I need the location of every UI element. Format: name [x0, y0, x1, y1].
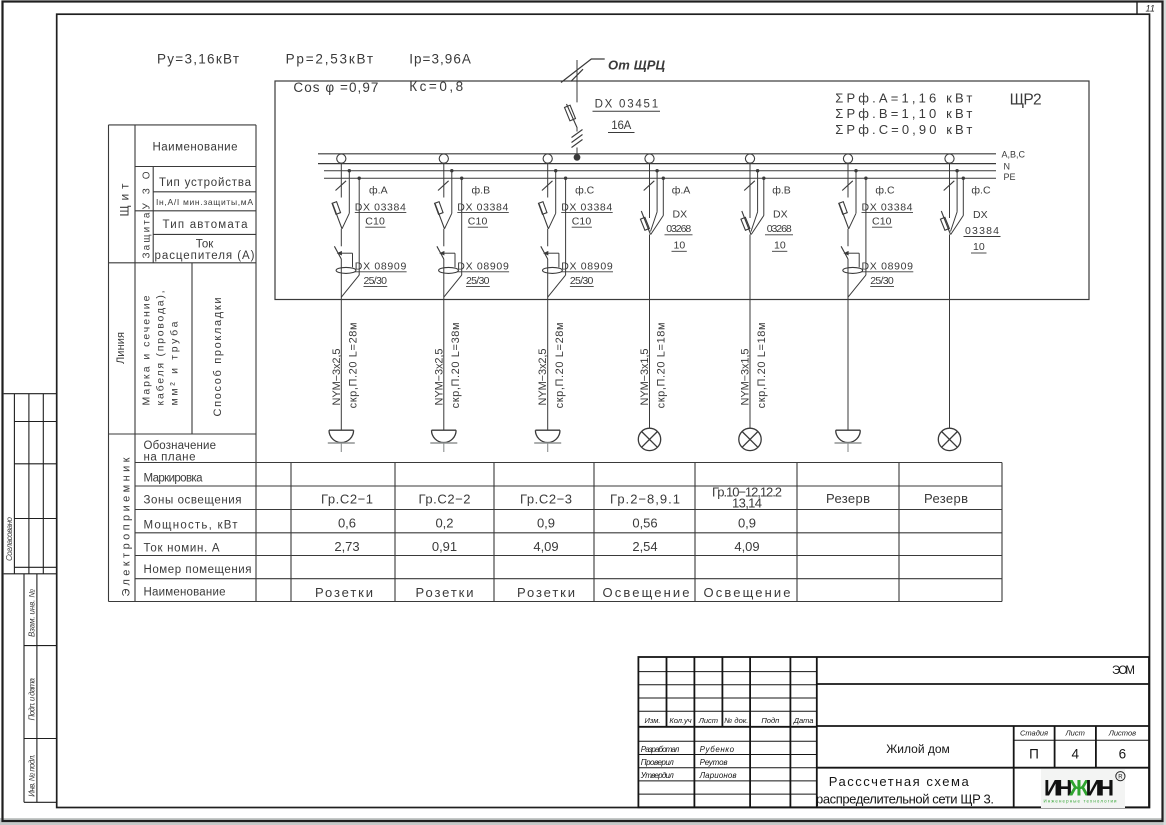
svg-text:Освещение: Освещение	[704, 585, 791, 600]
svg-text:скр,П.20 L=18м: скр,П.20 L=18м	[656, 322, 668, 408]
svg-text:Кол.уч: Кол.уч	[669, 716, 691, 725]
svg-text:Изм.: Изм.	[645, 716, 661, 725]
svg-text:ф.В: ф.В	[772, 185, 791, 197]
svg-text:ф.А: ф.А	[672, 185, 691, 197]
svg-text:От ЩРЦ: От ЩРЦ	[608, 58, 666, 73]
svg-text:25/30: 25/30	[570, 275, 594, 287]
svg-text:распределительной сети ЩР 3.: распределительной сети ЩР 3.	[816, 792, 994, 807]
svg-text:DX 03451: DX 03451	[595, 99, 659, 111]
svg-text:А,В,С: А,В,С	[1002, 149, 1026, 159]
svg-text:скр,П.20 L=28м: скр,П.20 L=28м	[554, 322, 566, 408]
svg-text:Листов: Листов	[1108, 728, 1136, 737]
svg-text:Утвердил: Утвердил	[640, 771, 674, 780]
svg-text:R: R	[1118, 775, 1123, 781]
svg-text:2,73: 2,73	[334, 539, 359, 554]
svg-text:DX 03384: DX 03384	[862, 201, 913, 213]
svg-text:Тип автомата: Тип автомата	[163, 219, 249, 231]
svg-text:10: 10	[973, 241, 985, 253]
svg-text:Cos φ =0,97: Cos φ =0,97	[293, 80, 378, 95]
svg-text:Гр.С2−2: Гр.С2−2	[419, 491, 471, 506]
svg-text:мм² и труба: мм² и труба	[169, 321, 181, 405]
svg-text:11: 11	[1146, 4, 1155, 14]
svg-text:NYM−3x1,5: NYM−3x1,5	[639, 349, 651, 406]
svg-text:Щит: Щит	[118, 183, 132, 217]
svg-text:6: 6	[1119, 747, 1127, 762]
svg-text:Линия: Линия	[115, 332, 127, 364]
svg-text:10: 10	[774, 240, 786, 252]
svg-text:Ток: Ток	[196, 239, 215, 251]
svg-text:Гр.2−8,9.1: Гр.2−8,9.1	[610, 491, 680, 506]
svg-text:Рубенко: Рубенко	[700, 745, 735, 754]
svg-text:Ру=3,16кВт: Ру=3,16кВт	[157, 52, 239, 67]
svg-text:скр,П.20 L=28м: скр,П.20 L=28м	[348, 322, 360, 408]
svg-text:Лист: Лист	[698, 716, 718, 725]
svg-text:0,9: 0,9	[738, 515, 756, 530]
svg-text:Наименование: Наименование	[144, 587, 226, 599]
svg-text:DX 08909: DX 08909	[355, 260, 407, 272]
svg-text:13,14: 13,14	[732, 496, 762, 511]
svg-text:Инв. № подл.: Инв. № подл.	[28, 754, 37, 797]
svg-text:Жилой дом: Жилой дом	[886, 742, 950, 756]
svg-text:2,54: 2,54	[632, 539, 657, 554]
svg-text:Гр.С2−3: Гр.С2−3	[520, 491, 572, 506]
svg-text:расцепителя (А): расцепителя (А)	[155, 250, 255, 262]
svg-text:DX 03384: DX 03384	[561, 201, 612, 213]
svg-text:25/30: 25/30	[364, 275, 388, 287]
svg-text:Тип устройства: Тип устройства	[159, 177, 252, 189]
svg-text:Номер помещения: Номер помещения	[144, 564, 252, 576]
svg-text:Расссчетная схема: Расссчетная схема	[829, 774, 970, 789]
svg-text:Ларионов: Ларионов	[699, 771, 737, 780]
svg-text:03268: 03268	[666, 223, 691, 235]
svg-text:Подп: Подп	[761, 716, 779, 725]
svg-text:Наименование: Наименование	[153, 142, 238, 154]
svg-text:25/30: 25/30	[466, 275, 490, 287]
svg-text:Способ прокладки: Способ прокладки	[212, 298, 224, 417]
svg-text:ф.В: ф.В	[472, 185, 491, 197]
svg-text:ЭОМ: ЭОМ	[1112, 665, 1135, 677]
svg-text:N: N	[1004, 161, 1011, 171]
svg-text:УЗО: УЗО	[142, 171, 153, 209]
svg-text:Стадия: Стадия	[1020, 728, 1048, 737]
svg-text:Рр=2,53кВт: Рр=2,53кВт	[286, 52, 374, 67]
svg-text:Резерв: Резерв	[826, 491, 870, 506]
svg-text:на плане: на плане	[144, 452, 196, 464]
svg-text:Марка и сечение: Марка и сечение	[141, 295, 153, 405]
svg-text:ф.С: ф.С	[875, 185, 895, 197]
svg-text:0,2: 0,2	[435, 515, 453, 530]
svg-text:0,9: 0,9	[537, 515, 555, 530]
svg-text:Инженерные технологии: Инженерные технологии	[1044, 799, 1118, 804]
svg-text:4,09: 4,09	[533, 539, 558, 554]
svg-text:П: П	[1029, 747, 1039, 762]
svg-text:DX: DX	[973, 209, 988, 221]
svg-text:03268: 03268	[767, 223, 792, 235]
svg-text:Электроприемник: Электроприемник	[121, 457, 133, 596]
svg-text:C10: C10	[365, 216, 385, 228]
svg-text:скр,П.20 L=38м: скр,П.20 L=38м	[450, 322, 462, 408]
svg-text:4: 4	[1071, 747, 1079, 762]
svg-text:Реутов: Реутов	[700, 758, 728, 767]
svg-text:C10: C10	[468, 216, 488, 228]
svg-text:Освещение: Освещение	[603, 585, 690, 600]
svg-text:ф.С: ф.С	[575, 185, 595, 197]
svg-text:NYM−3x2,5: NYM−3x2,5	[537, 349, 549, 406]
svg-text:25/30: 25/30	[870, 275, 894, 287]
svg-text:DX 03384: DX 03384	[457, 201, 508, 213]
svg-text:ф.А: ф.А	[369, 185, 388, 197]
svg-text:DX 08909: DX 08909	[862, 260, 914, 272]
svg-text:Зоны освещения: Зоны освещения	[144, 494, 242, 506]
svg-text:DX 08909: DX 08909	[457, 260, 509, 272]
svg-text:Дата: Дата	[793, 716, 814, 725]
svg-text:10: 10	[674, 240, 686, 252]
svg-text:Iн,А/I мин.защиты,мА: Iн,А/I мин.защиты,мА	[156, 197, 253, 207]
svg-text:16А: 16А	[611, 120, 631, 132]
svg-text:NYM−3x2,5: NYM−3x2,5	[331, 349, 343, 406]
svg-text:03384: 03384	[965, 225, 999, 237]
svg-text:Согласовано: Согласовано	[5, 516, 14, 561]
svg-text:Разработал: Разработал	[641, 745, 680, 754]
svg-text:DX 03384: DX 03384	[355, 201, 406, 213]
svg-text:Iр=3,96А: Iр=3,96А	[409, 52, 471, 67]
svg-text:Мощность, кВт: Мощность, кВт	[144, 519, 239, 531]
svg-text:Гр.С2−1: Гр.С2−1	[321, 491, 373, 506]
svg-text:0,6: 0,6	[338, 515, 356, 530]
svg-text:ф.С: ф.С	[971, 185, 991, 197]
svg-text:DX 08909: DX 08909	[561, 260, 613, 272]
svg-text:Взам. инв. №: Взам. инв. №	[28, 589, 37, 637]
svg-text:ИНЖИН: ИНЖИН	[1044, 776, 1114, 801]
svg-text:Подп. и дата: Подп. и дата	[28, 677, 37, 720]
svg-text:NYM−3x2,5: NYM−3x2,5	[433, 349, 445, 406]
svg-text:Обозначение: Обозначение	[144, 440, 217, 452]
svg-text:ЩР2: ЩР2	[1010, 92, 1042, 109]
svg-text:Ток номин. А: Ток номин. А	[144, 543, 220, 555]
svg-text:Лист: Лист	[1065, 728, 1085, 737]
svg-text:PE: PE	[1004, 172, 1016, 182]
svg-text:№ док.: № док.	[724, 716, 748, 725]
svg-text:Проверил: Проверил	[641, 758, 674, 767]
svg-text:0,56: 0,56	[632, 515, 657, 530]
svg-text:скр,П.20 L=18м: скр,П.20 L=18м	[756, 322, 768, 408]
svg-text:NYM−3x1,5: NYM−3x1,5	[740, 349, 752, 406]
svg-text:4,09: 4,09	[734, 539, 759, 554]
svg-text:DX: DX	[673, 209, 688, 221]
svg-text:C10: C10	[872, 216, 892, 228]
svg-text:Резерв: Резерв	[924, 491, 968, 506]
svg-text:0,91: 0,91	[432, 539, 457, 554]
svg-text:DX: DX	[773, 209, 788, 221]
svg-text:Маркировка: Маркировка	[144, 473, 204, 485]
svg-text:C10: C10	[572, 216, 592, 228]
